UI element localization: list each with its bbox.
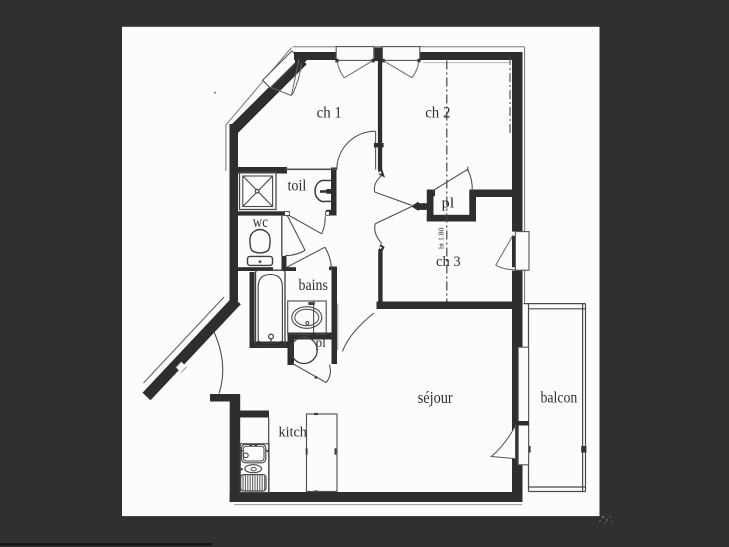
svg-text:kitch: kitch bbox=[279, 424, 308, 440]
svg-text:pl: pl bbox=[316, 335, 327, 350]
svg-text:toil: toil bbox=[288, 177, 307, 194]
svg-text:ch 1: ch 1 bbox=[317, 104, 342, 121]
svg-text:ht 1.80: ht 1.80 bbox=[437, 227, 445, 249]
svg-text:wc: wc bbox=[253, 214, 268, 231]
svg-text:pl: pl bbox=[442, 195, 455, 211]
svg-text:ch 2: ch 2 bbox=[425, 104, 450, 121]
svg-text:séjour: séjour bbox=[418, 388, 453, 407]
svg-text:ch 3: ch 3 bbox=[436, 254, 461, 270]
svg-text:bains: bains bbox=[299, 277, 328, 294]
svg-text:balcon: balcon bbox=[541, 389, 578, 406]
